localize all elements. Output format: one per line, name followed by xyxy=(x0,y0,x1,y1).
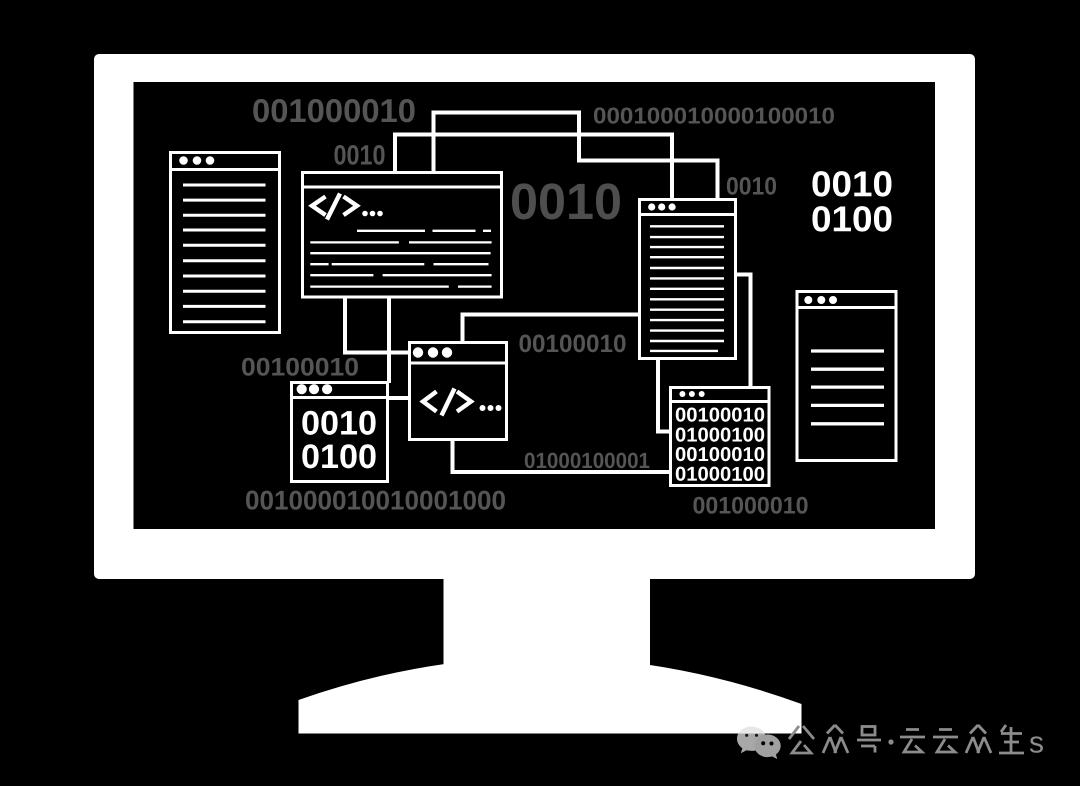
svg-text:001000010: 001000010 xyxy=(252,92,416,129)
svg-text:000100010000100010: 000100010000100010 xyxy=(593,102,835,128)
svg-text:00100010: 00100010 xyxy=(675,404,765,426)
svg-text:0010: 0010 xyxy=(726,172,777,200)
svg-text:s: s xyxy=(1029,726,1044,759)
svg-text:001000010010001000: 001000010010001000 xyxy=(245,485,506,515)
svg-text:01000100: 01000100 xyxy=(675,464,765,486)
svg-text:0010: 0010 xyxy=(301,404,377,442)
svg-text:00100010: 00100010 xyxy=(241,353,359,381)
svg-text:0010: 0010 xyxy=(333,139,385,170)
svg-text:0100: 0100 xyxy=(301,438,377,476)
svg-text:00100010: 00100010 xyxy=(518,330,626,358)
svg-text:001000010: 001000010 xyxy=(692,492,808,519)
svg-text:0010: 0010 xyxy=(510,173,622,230)
svg-text:0100: 0100 xyxy=(811,198,893,239)
svg-text:01000100001: 01000100001 xyxy=(524,448,650,473)
